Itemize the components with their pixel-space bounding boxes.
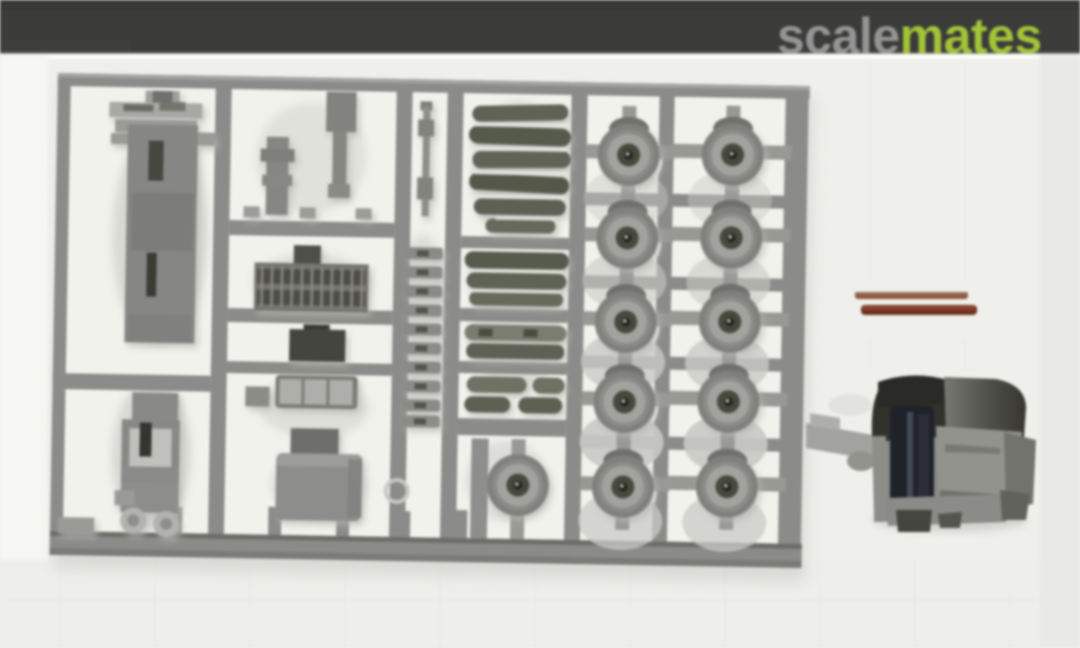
svg-text:scalemates: scalemates [777, 8, 1042, 64]
